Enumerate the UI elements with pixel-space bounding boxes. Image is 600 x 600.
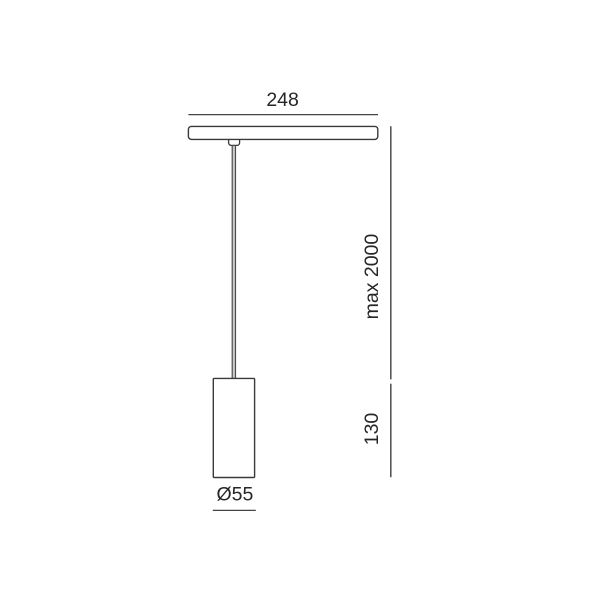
svg-text:130: 130 <box>361 413 383 446</box>
svg-text:248: 248 <box>266 89 299 111</box>
svg-text:Ø55: Ø55 <box>216 484 253 506</box>
svg-text:max 2000: max 2000 <box>361 234 383 320</box>
